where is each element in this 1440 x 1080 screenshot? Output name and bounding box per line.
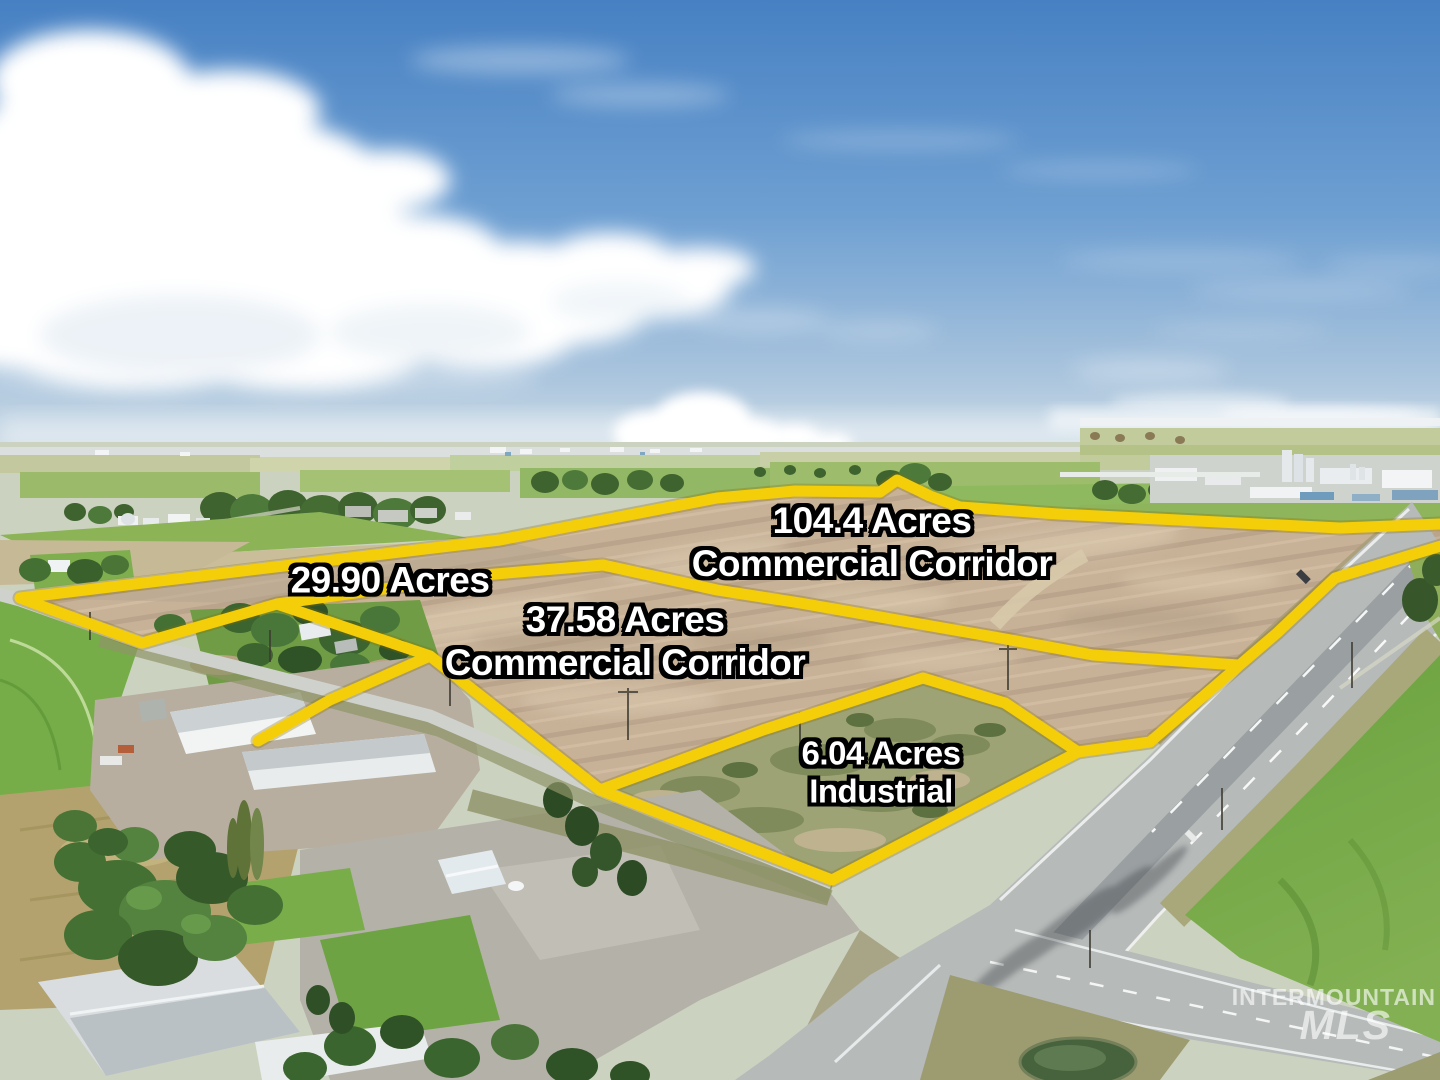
acreage-text: 29.90 Acres xyxy=(291,560,490,603)
parcel-label-6-04-acres: 6.04 Acres Industrial xyxy=(802,735,961,812)
watermark-line2: MLS xyxy=(1232,1005,1392,1046)
use-text: Commercial Corridor xyxy=(692,543,1053,586)
acreage-text: 6.04 Acres xyxy=(802,735,961,773)
use-text: Industrial xyxy=(802,773,961,811)
parcel-label-37-58-acres: 37.58 Acres Commercial Corridor xyxy=(445,599,806,685)
parcel-label-29-90-acres: 29.90 Acres xyxy=(291,560,490,603)
mls-watermark: INTERMOUNTAIN MLS xyxy=(1232,986,1436,1046)
acreage-text: 104.4 Acres xyxy=(692,500,1053,543)
use-text: Commercial Corridor xyxy=(445,642,806,685)
acreage-text: 37.58 Acres xyxy=(445,599,806,642)
aerial-listing-photo: 104.4 Acres Commercial Corridor 29.90 Ac… xyxy=(0,0,1440,1080)
parcel-label-104-acres: 104.4 Acres Commercial Corridor xyxy=(692,500,1053,586)
